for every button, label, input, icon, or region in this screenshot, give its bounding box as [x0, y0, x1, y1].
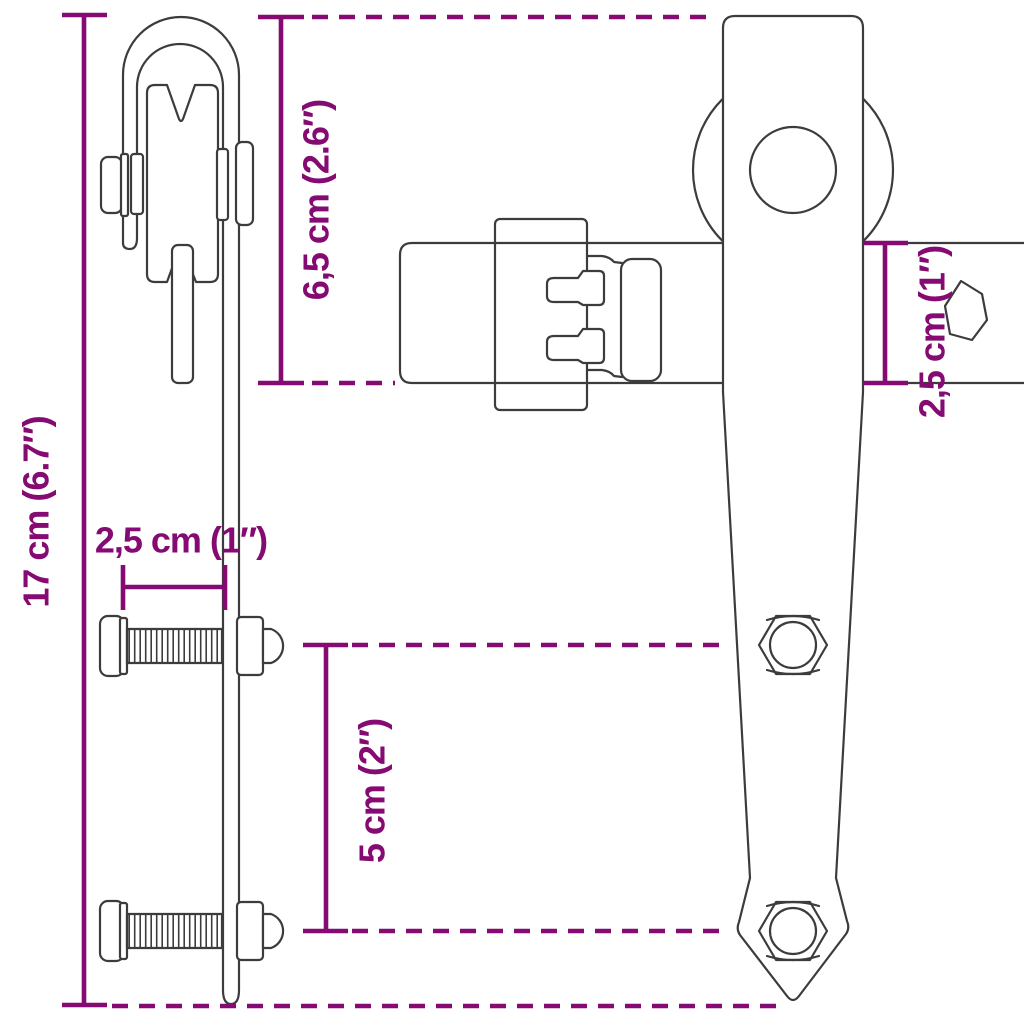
dim-hole-spacing-label: 5 cm (2″) — [352, 719, 393, 863]
line-art — [100, 16, 1024, 1004]
side-view — [100, 17, 283, 1004]
mounting-bolt-upper — [100, 616, 283, 676]
dim-total-height-label: 17 cm (6.7″) — [16, 416, 57, 607]
axle-washer-left-thin — [121, 154, 128, 216]
axle-hub-front — [750, 127, 836, 213]
mounting-bolt-lower — [100, 901, 283, 961]
bolt-back-washer — [237, 902, 263, 960]
bolt-thread — [127, 914, 222, 948]
axle-nut-disc — [236, 142, 253, 225]
bolt-cap-nut — [263, 914, 283, 948]
bolt-thread — [127, 629, 222, 663]
axle-washer-right — [217, 149, 228, 220]
axle-washer-left — [131, 154, 143, 214]
dim-hanger-height-label: 6,5 cm (2.6″) — [296, 100, 337, 300]
bolt-back-washer — [237, 617, 263, 675]
axle-bolt-head — [101, 157, 122, 213]
bolt-cap-nut — [263, 629, 283, 663]
rail-end-side — [172, 245, 193, 383]
hanger-dimension-diagram: 17 cm (6.7″) 6,5 cm (2.6″) 2,5 cm (1″) 5… — [0, 0, 1024, 1024]
dim-hole-spacing-line — [303, 645, 348, 931]
front-view — [400, 16, 1024, 1000]
dim-bolt-offset-label: 2,5 cm (1″) — [95, 520, 267, 561]
rail-sleeve — [621, 259, 661, 381]
technical-drawing-canvas: 17 cm (6.7″) 6,5 cm (2.6″) 2,5 cm (1″) 5… — [0, 0, 1024, 1024]
dim-bolt-offset-line — [123, 565, 225, 610]
dim-rail-height-label: 2,5 cm (1″) — [912, 246, 953, 418]
